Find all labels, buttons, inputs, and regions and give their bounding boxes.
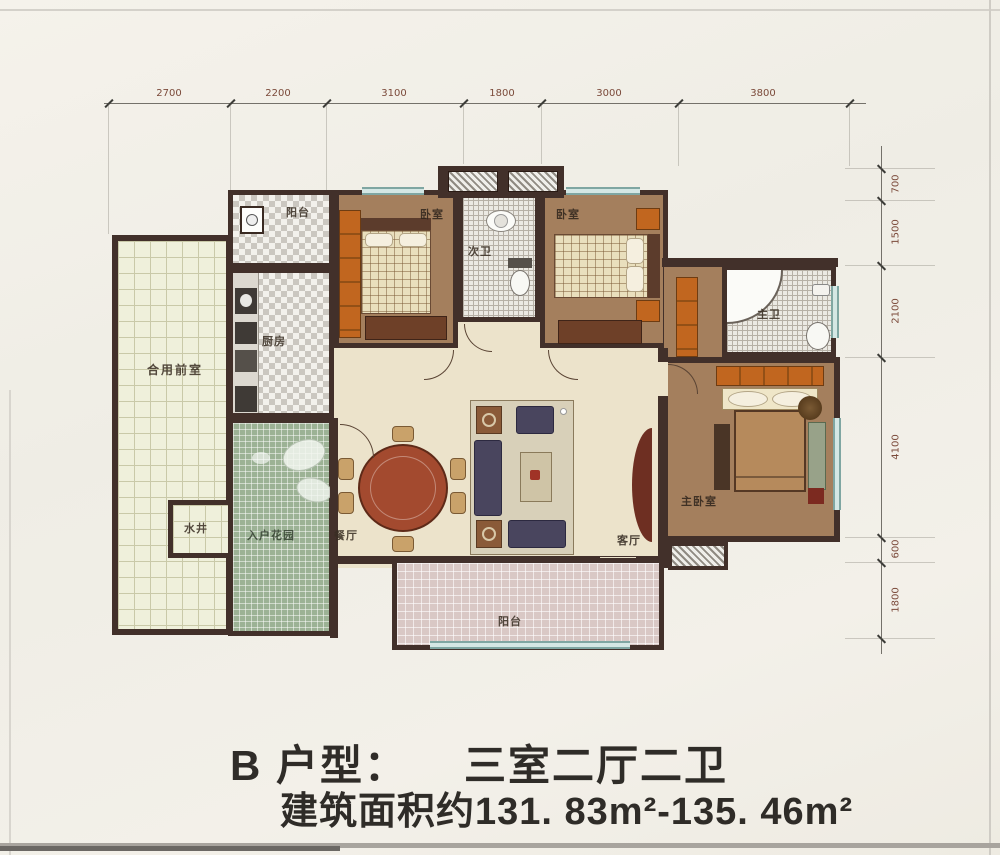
end-table-ring: [482, 413, 496, 427]
label-shared-front-room: 合用前室: [147, 361, 203, 378]
dim-label-top: 3100: [381, 88, 406, 99]
kitchen-stove: [235, 322, 257, 344]
window: [831, 286, 839, 338]
pillow: [728, 391, 768, 407]
scan-edge-left: [9, 390, 11, 855]
ac-unit: [668, 542, 728, 570]
toilet-bowl: [510, 270, 530, 296]
label-bedroom-right: 卧室: [556, 206, 580, 222]
dim-guide: [845, 168, 935, 169]
red-stool: [808, 488, 824, 504]
top-dimension-line: [104, 103, 866, 104]
dim-label-right: 1500: [891, 219, 902, 244]
wardrobe: [339, 210, 361, 338]
dim-guide: [678, 104, 679, 166]
master-closet: [676, 277, 698, 357]
label-bath-secondary: 次卫: [468, 243, 492, 259]
bed-master-footline: [736, 476, 804, 478]
bed-headboard: [648, 234, 660, 298]
label-bedroom-left: 卧室: [420, 206, 444, 222]
scan-edge-right: [989, 0, 991, 855]
dim-label-top: 2700: [156, 88, 181, 99]
window: [430, 641, 630, 649]
dim-label-right: 2100: [891, 298, 902, 323]
room-shared-front: [112, 235, 232, 635]
label-kitchen: 厨房: [262, 333, 286, 349]
label-living: 客厅: [617, 532, 641, 548]
dim-guide: [326, 104, 327, 190]
dim-label-right: 700: [891, 174, 902, 193]
dim-guide: [845, 537, 935, 538]
dim-guide: [845, 562, 935, 563]
kitchen-sink-bowl: [240, 294, 252, 307]
label-balcony-bottom: 阳台: [498, 613, 522, 629]
washing-machine-drum: [246, 214, 258, 226]
sofa-long: [474, 440, 502, 516]
ac-unit: [508, 171, 558, 192]
coffee-table-item: [530, 470, 540, 480]
bed-master: [734, 410, 806, 492]
dining-table-inner: [370, 456, 436, 520]
dresser-master: [716, 366, 824, 386]
dim-guide: [845, 357, 935, 358]
dim-guide: [845, 200, 935, 201]
end-table-ring: [482, 527, 496, 541]
kitchen-counter-unit: [235, 350, 257, 372]
window: [362, 187, 424, 195]
dining-chair: [338, 458, 354, 480]
dresser: [365, 316, 447, 340]
sofa-bottom: [508, 520, 566, 548]
label-entry-garden: 入户花园: [247, 527, 295, 543]
dim-guide: [230, 104, 231, 190]
ac-unit: [448, 171, 498, 192]
dim-label-top: 2200: [265, 88, 290, 99]
bath-faucet: [812, 284, 830, 296]
dining-chair: [338, 492, 354, 514]
dim-label-top: 3800: [750, 88, 775, 99]
label-dining: 餐厅: [334, 527, 358, 543]
pillow: [399, 233, 427, 247]
floor-plan-page: 2700 2200 3100 1800 3000 3800 700 1500 2…: [0, 0, 1000, 855]
dim-guide: [463, 104, 464, 164]
pillow: [626, 238, 644, 264]
nightstand: [636, 208, 660, 230]
label-balcony-top: 阳台: [286, 204, 310, 220]
dresser: [558, 320, 642, 344]
plant: [798, 396, 822, 420]
garden-stone: [252, 452, 270, 464]
nightstand: [636, 300, 660, 322]
dining-chair: [450, 492, 466, 514]
pillow: [365, 233, 393, 247]
caption-line2: 建筑面积约131. 83m²-135. 46m²: [280, 780, 853, 835]
bench: [808, 422, 826, 490]
dim-label-top: 1800: [489, 88, 514, 99]
kitchen-fridge: [235, 386, 257, 412]
right-dimension-line: [881, 146, 882, 654]
dim-guide: [845, 265, 935, 266]
dining-chair: [392, 536, 414, 552]
decor-dot: [560, 408, 567, 415]
sink-bowl: [494, 214, 508, 228]
label-bedroom-master: 主卧室: [681, 493, 717, 509]
dim-label-right: 4100: [891, 434, 902, 459]
label-water-well: 水井: [184, 520, 208, 536]
master-door-opening: [658, 362, 668, 396]
room-balcony-bottom: [392, 558, 664, 650]
window: [833, 418, 841, 510]
dim-guide: [849, 104, 850, 166]
toilet-bowl: [806, 322, 830, 350]
pillow: [626, 266, 644, 292]
side-cabinet: [714, 424, 730, 490]
dining-chair: [392, 426, 414, 442]
dim-guide: [541, 104, 542, 164]
label-bath-master: 主卫: [757, 306, 781, 322]
dining-chair: [450, 458, 466, 480]
toilet-tank: [508, 258, 532, 268]
dim-label-right: 600: [891, 539, 902, 558]
sofa-loveseat: [516, 406, 554, 434]
scan-edge-bottom-dark: [0, 846, 340, 851]
dim-label-top: 3000: [596, 88, 621, 99]
dim-guide: [108, 104, 109, 234]
scan-edge-top: [0, 9, 1000, 11]
window: [566, 187, 640, 195]
dim-label-right: 1800: [891, 587, 902, 612]
dim-guide: [845, 638, 935, 639]
